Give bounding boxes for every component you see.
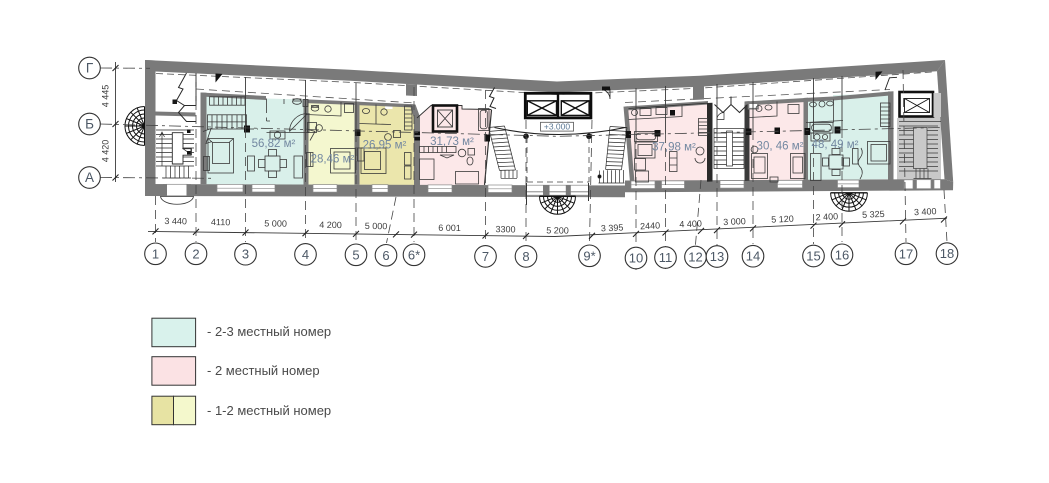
svg-text:3: 3: [242, 247, 249, 262]
svg-text:4110: 4110: [211, 217, 230, 227]
svg-text:13: 13: [710, 249, 724, 264]
svg-text:2: 2: [192, 246, 199, 261]
svg-text:28,46 м²: 28,46 м²: [311, 154, 355, 166]
svg-text:4 400: 4 400: [679, 218, 702, 229]
svg-text:11: 11: [659, 250, 673, 265]
svg-text:37,98 м²: 37,98 м²: [652, 142, 696, 154]
svg-text:5 120: 5 120: [771, 214, 794, 225]
svg-text:6 001: 6 001: [438, 223, 461, 233]
svg-text:48, 49 м²: 48, 49 м²: [812, 139, 859, 151]
svg-text:14: 14: [746, 249, 760, 264]
svg-text:3 400: 3 400: [914, 206, 937, 217]
svg-text:- 2-3 местный номер: - 2-3 местный номер: [207, 324, 331, 339]
svg-text:10: 10: [629, 251, 643, 266]
svg-text:4: 4: [302, 247, 309, 262]
svg-text:4 200: 4 200: [319, 220, 342, 230]
svg-text:- 1-2 местный номер: - 1-2 местный номер: [207, 403, 331, 418]
svg-text:30, 46 м²: 30, 46 м²: [757, 141, 804, 153]
svg-text:7: 7: [482, 249, 489, 264]
svg-text:5 000: 5 000: [264, 218, 287, 228]
svg-text:3300: 3300: [495, 224, 515, 234]
svg-text:5 000: 5 000: [365, 221, 388, 231]
svg-text:1: 1: [152, 246, 159, 261]
svg-text:2 400: 2 400: [815, 211, 838, 222]
svg-text:8: 8: [522, 249, 529, 264]
svg-text:5 325: 5 325: [862, 209, 885, 220]
svg-text:Г: Г: [86, 61, 94, 76]
svg-text:18: 18: [940, 246, 954, 261]
svg-text:3 000: 3 000: [723, 216, 746, 227]
svg-text:4 445: 4 445: [101, 85, 111, 108]
svg-text:12: 12: [688, 250, 702, 265]
svg-text:17: 17: [899, 246, 913, 261]
svg-text:15: 15: [806, 249, 820, 264]
svg-text:31,73 м²: 31,73 м²: [430, 136, 474, 148]
svg-text:3 395: 3 395: [601, 222, 624, 233]
svg-text:А: А: [85, 170, 94, 185]
svg-text:Б: Б: [85, 117, 94, 132]
svg-text:3 440: 3 440: [164, 216, 187, 226]
svg-text:16: 16: [835, 247, 849, 262]
svg-text:56,82 м²: 56,82 м²: [252, 138, 296, 150]
svg-text:26,95 м²: 26,95 м²: [363, 140, 407, 152]
svg-text:4 420: 4 420: [101, 140, 111, 163]
svg-text:5: 5: [352, 247, 359, 262]
svg-text:6*: 6*: [408, 247, 420, 262]
svg-text:5 200: 5 200: [546, 225, 569, 235]
svg-text:+3.000: +3.000: [544, 121, 571, 131]
svg-text:2440: 2440: [640, 220, 660, 231]
svg-text:- 2 местный номер: - 2 местный номер: [207, 363, 320, 378]
svg-text:9*: 9*: [583, 248, 595, 263]
svg-text:6: 6: [382, 248, 389, 263]
